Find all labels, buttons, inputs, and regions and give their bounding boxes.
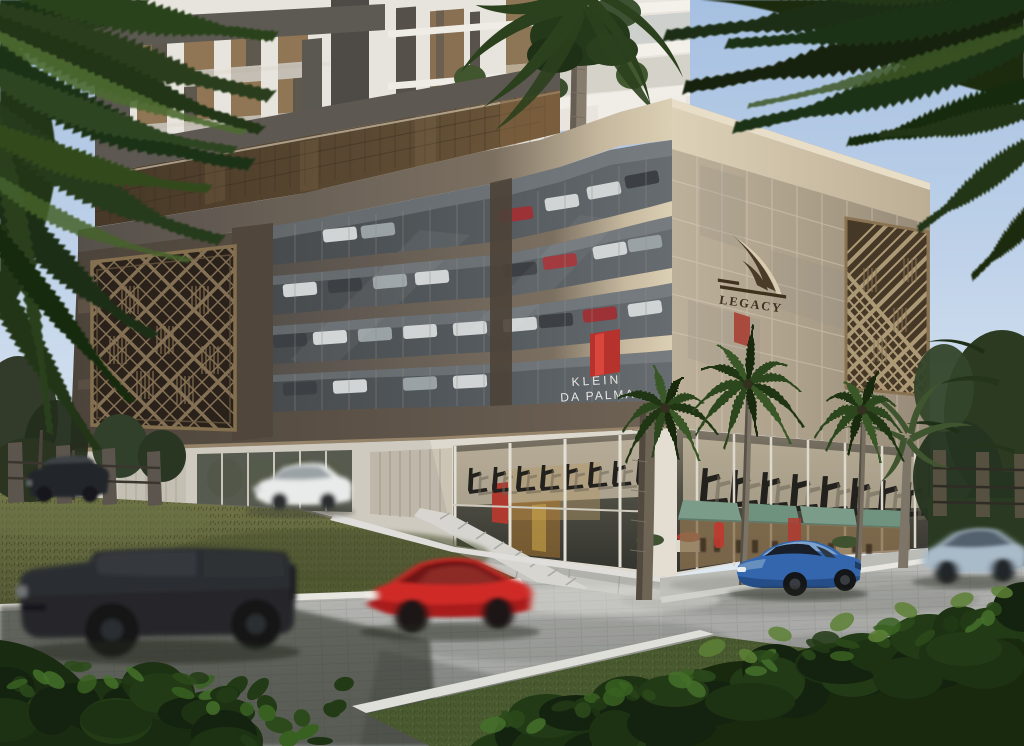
svg-text:KLEIN: KLEIN (571, 372, 621, 389)
